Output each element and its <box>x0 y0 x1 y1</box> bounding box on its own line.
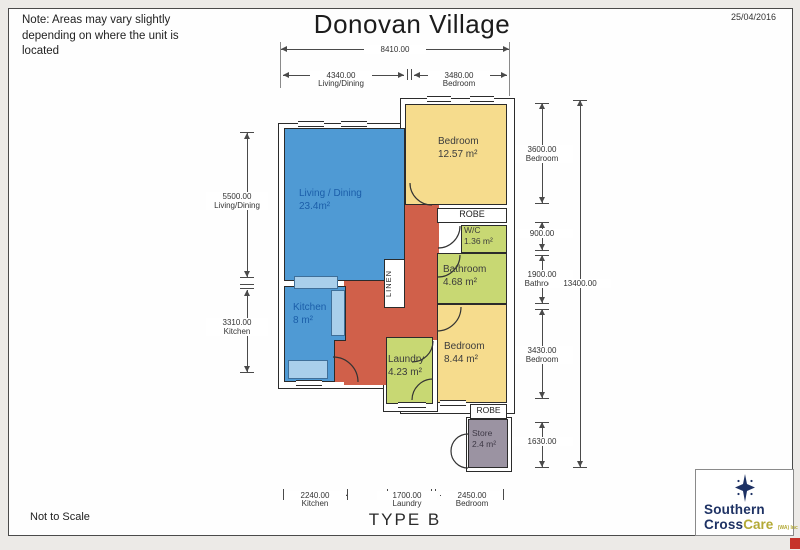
linen-label: LINEN <box>384 261 405 306</box>
robe-top-label: ROBE <box>437 210 507 220</box>
room-area: 23.4m² <box>299 201 362 214</box>
logo-suffix: (WA) Inc <box>778 525 798 531</box>
scan-artifact <box>790 538 800 549</box>
room-label-bedroom-2: Bedroom 8.44 m² <box>444 341 485 366</box>
room-label-bedroom-1: Bedroom 12.57 m² <box>438 136 479 161</box>
room-name: Laundry <box>388 354 424 367</box>
not-to-scale-label: Not to Scale <box>30 511 90 523</box>
room-label-laundry: Laundry 4.23 m² <box>388 354 424 379</box>
logo-word-cross: Cross <box>704 517 743 532</box>
logo-box: Southern CrossCare (WA) Inc <box>695 469 794 536</box>
logo-word-southern: Southern <box>704 502 765 517</box>
logo-word-care: Care <box>743 517 773 532</box>
room-area: 8.44 m² <box>444 354 485 367</box>
room-area: 12.57 m² <box>438 149 479 162</box>
dim-label: Bedroom <box>442 500 502 509</box>
room-name: Kitchen <box>293 302 326 315</box>
southern-cross-star-icon <box>733 474 757 502</box>
logo-line-2: CrossCare (WA) Inc <box>704 516 798 534</box>
room-area: 4.68 m² <box>443 277 486 290</box>
room-label-store: Store 2.4 m² <box>472 428 496 449</box>
room-name: Bedroom <box>444 341 485 354</box>
room-name: Living / Dining <box>299 188 362 201</box>
room-label-bathroom: Bathroom 4.68 m² <box>443 264 486 289</box>
room-label-kitchen: Kitchen 8 m² <box>293 302 326 327</box>
robe-bottom-label: ROBE <box>470 406 507 415</box>
room-area: 2.4 m² <box>472 439 496 450</box>
room-area: 1.36 m² <box>464 236 493 247</box>
room-name: Store <box>472 428 496 439</box>
room-area: 8 m² <box>293 315 326 328</box>
room-name: Bathroom <box>443 264 486 277</box>
type-label: TYPE B <box>340 510 470 530</box>
dim-tick <box>347 489 348 500</box>
room-name: Bedroom <box>438 136 479 149</box>
floor-plan-sheet: Note: Areas may vary slightly depending … <box>0 0 800 550</box>
room-name: W/C <box>464 225 493 236</box>
dim-label: Laundry <box>379 500 435 509</box>
room-area: 4.23 m² <box>388 367 424 380</box>
room-label-wc: W/C 1.36 m² <box>464 225 493 246</box>
room-label-living: Living / Dining 23.4m² <box>299 188 362 213</box>
dim-tick <box>503 489 504 500</box>
dim-label: Kitchen <box>285 500 345 509</box>
